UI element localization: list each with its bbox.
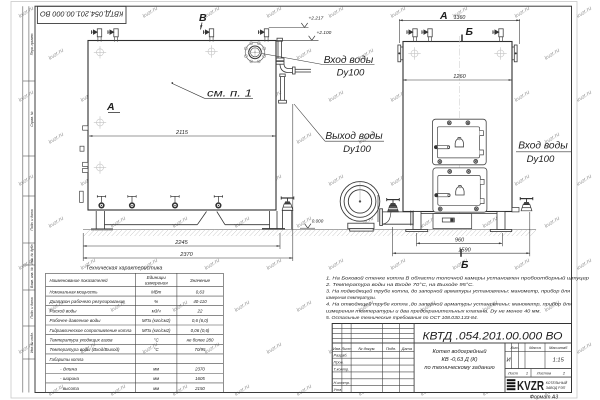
svg-text:Гидравлическое сопротивление к: Гидравлическое сопротивление котла xyxy=(50,328,133,333)
svg-text:kvzr.ru: kvzr.ru xyxy=(544,216,561,230)
svg-text:мм: мм xyxy=(153,367,159,372)
svg-text:Инв. № подл.: Инв. № подл. xyxy=(30,332,34,353)
svg-text:40-110: 40-110 xyxy=(193,299,207,304)
svg-text:Справ. №: Справ. № xyxy=(30,111,34,127)
svg-text:Дата: Дата xyxy=(401,346,413,351)
svg-text:kvzr.ru: kvzr.ru xyxy=(172,216,189,230)
svg-text:kvzr.ru: kvzr.ru xyxy=(514,174,531,188)
svg-text:Вход воды: Вход воды xyxy=(518,141,568,152)
svg-text:%: % xyxy=(154,299,158,304)
svg-text:kvzr.ru: kvzr.ru xyxy=(18,174,35,188)
svg-text:по техническому заданию: по техническому заданию xyxy=(424,365,495,371)
svg-text:1360: 1360 xyxy=(454,15,466,21)
svg-text:3. На подводящей трубе котла,: 3. На подводящей трубе котла, до запорно… xyxy=(326,288,571,294)
svg-text:Разраб.: Разраб. xyxy=(334,353,348,358)
svg-text:Котел водогрейный: Котел водогрейный xyxy=(432,348,487,355)
svg-text:Листов: Листов xyxy=(536,371,551,376)
svg-text:Взам. инв. №: Взам. инв. № xyxy=(30,267,34,288)
svg-text:kvzr.ru: kvzr.ru xyxy=(296,216,313,230)
svg-text:Номинальная мощность: Номинальная мощность xyxy=(50,289,99,294)
svg-text:Масштаб: Масштаб xyxy=(549,345,568,350)
svg-text:Подп.: Подп. xyxy=(386,346,396,351)
svg-text:МПа (кгс/см2): МПа (кгс/см2) xyxy=(142,318,171,323)
svg-text:Подп. и дата: Подп. и дата xyxy=(30,209,34,230)
svg-text:0,06 (0,6): 0,06 (0,6) xyxy=(191,328,210,333)
svg-text:КВ -0,63 Д (К): КВ -0,63 Д (К) xyxy=(442,357,478,363)
svg-text:Габариты котла: Габариты котла xyxy=(50,357,85,362)
svg-text:2150: 2150 xyxy=(194,386,205,391)
svg-text:+2.217: +2.217 xyxy=(309,16,324,22)
svg-text:kvzr.ru: kvzr.ru xyxy=(390,258,407,272)
svg-text:Н.контр.: Н.контр. xyxy=(334,380,350,385)
svg-text:Dy100: Dy100 xyxy=(527,154,555,165)
svg-text:1: 1 xyxy=(526,371,528,376)
svg-text:kvzr.ru: kvzr.ru xyxy=(142,6,159,20)
svg-text:kvzr.ru: kvzr.ru xyxy=(18,6,35,20)
svg-text:1590: 1590 xyxy=(458,247,471,253)
svg-text:1:15: 1:15 xyxy=(553,358,565,364)
svg-text:°С: °С xyxy=(154,347,160,352)
svg-text:kvzr.ru: kvzr.ru xyxy=(328,174,345,188)
svg-text:1605: 1605 xyxy=(195,376,205,381)
svg-text:2370: 2370 xyxy=(194,367,205,372)
svg-text:А: А xyxy=(439,10,448,22)
svg-text:Масса: Масса xyxy=(529,345,541,350)
svg-text:1. На Боковой стенке котла В: 1. На Боковой стенке котла В области топ… xyxy=(326,275,590,281)
svg-text:Подп. и дата: Подп. и дата xyxy=(30,297,34,318)
svg-text:2115: 2115 xyxy=(175,130,189,136)
svg-text:kvzr.ru: kvzr.ru xyxy=(576,174,593,188)
svg-text:70/95: 70/95 xyxy=(195,347,207,352)
svg-text:kvzr.ru: kvzr.ru xyxy=(296,132,313,146)
svg-text:kvzr.ru: kvzr.ru xyxy=(266,342,283,356)
svg-text:измерения: измерения xyxy=(145,281,169,286)
svg-text:В: В xyxy=(199,12,207,24)
svg-text:Значение: Значение xyxy=(190,278,211,283)
svg-text:kvzr.ru: kvzr.ru xyxy=(544,48,561,62)
svg-text:Диапазон рабочего регулировани: Диапазон рабочего регулирования xyxy=(48,299,125,304)
svg-text:м3/ч: м3/ч xyxy=(152,309,162,314)
svg-text:Изм.: Изм. xyxy=(333,346,341,351)
svg-text:kvzr.ru: kvzr.ru xyxy=(576,6,593,20)
svg-text:kvzr.ru: kvzr.ru xyxy=(172,384,189,398)
svg-text:2370: 2370 xyxy=(179,252,193,258)
svg-text:не более 280: не более 280 xyxy=(187,338,214,343)
svg-text:KVZR: KVZR xyxy=(517,379,544,393)
svg-text:1260: 1260 xyxy=(453,74,466,80)
svg-text:КВТД.054.201.00.000 ВО: КВТД.054.201.00.000 ВО xyxy=(40,10,124,19)
svg-text:960: 960 xyxy=(455,237,465,243)
svg-text:+2.100: +2.100 xyxy=(317,30,332,36)
svg-text:- высота: - высота xyxy=(60,386,80,391)
svg-text:5. Остальные технические треб: 5. Остальные технические требования по О… xyxy=(326,315,478,320)
svg-text:kvzr.ru: kvzr.ru xyxy=(482,216,499,230)
svg-text:Наименование показателей: Наименование показателей xyxy=(50,277,108,283)
svg-text:0,63: 0,63 xyxy=(196,289,205,294)
svg-text:kvzr.ru: kvzr.ru xyxy=(48,48,65,62)
svg-text:Температура уходящих газов: Температура уходящих газов xyxy=(50,338,114,343)
svg-text:°С: °С xyxy=(154,338,160,343)
svg-text:измерения температуры.: измерения температуры. xyxy=(326,295,376,300)
svg-text:kvzr.ru: kvzr.ru xyxy=(18,90,35,104)
svg-text:Вход воды: Вход воды xyxy=(324,55,374,66)
svg-text:ЗАВОД РЭП: ЗАВОД РЭП xyxy=(546,386,566,390)
svg-text:Единицы: Единицы xyxy=(147,275,167,280)
svg-text:kvzr.ru: kvzr.ru xyxy=(172,300,189,314)
svg-text:kvzr.ru: kvzr.ru xyxy=(296,300,313,314)
svg-text:kvzr.ru: kvzr.ru xyxy=(234,384,251,398)
svg-text:kvzr.ru: kvzr.ru xyxy=(328,6,345,20)
svg-text:Лист: Лист xyxy=(340,346,352,351)
svg-text:мм: мм xyxy=(153,376,159,381)
svg-text:Перв. примен.: Перв. примен. xyxy=(30,33,34,56)
svg-text:мм: мм xyxy=(153,386,159,391)
svg-text:kvzr.ru: kvzr.ru xyxy=(296,48,313,62)
svg-text:измерения температуры и два пр: измерения температуры и два предохраните… xyxy=(326,308,541,313)
svg-text:КВТД .054.201.00.000 ВО: КВТД .054.201.00.000 ВО xyxy=(423,331,564,343)
svg-text:kvzr.ru: kvzr.ru xyxy=(328,90,345,104)
svg-text:kvzr.ru: kvzr.ru xyxy=(204,342,221,356)
svg-text:kvzr.ru: kvzr.ru xyxy=(234,300,251,314)
svg-text:22: 22 xyxy=(197,309,203,314)
svg-text:4. На отводящей трубе котла ,: 4. На отводящей трубе котла ,до запорной… xyxy=(326,301,573,307)
svg-text:kvzr.ru: kvzr.ru xyxy=(110,384,127,398)
svg-text:Формат А3: Формат А3 xyxy=(530,395,558,400)
svg-text:kvzr.ru: kvzr.ru xyxy=(576,90,593,104)
svg-text:kvzr.ru: kvzr.ru xyxy=(266,6,283,20)
svg-text:Dy100: Dy100 xyxy=(343,144,371,155)
svg-text:kvzr.ru: kvzr.ru xyxy=(514,258,531,272)
svg-text:Т.контр.: Т.контр. xyxy=(334,366,350,371)
svg-text:kvzr.ru: kvzr.ru xyxy=(390,6,407,20)
svg-text:kvzr.ru: kvzr.ru xyxy=(234,216,251,230)
svg-text:kvzr.ru: kvzr.ru xyxy=(576,258,593,272)
svg-text:2245: 2245 xyxy=(174,240,188,246)
svg-text:2. Температура воды на Входе: 2. Температура воды на Входе 70°С, на Вы… xyxy=(325,282,474,287)
svg-text:Dy100: Dy100 xyxy=(337,68,365,79)
svg-text:Температура воды (Вход/Выход): Температура воды (Вход/Выход) xyxy=(50,347,121,352)
svg-text:kvzr.ru: kvzr.ru xyxy=(48,132,65,146)
svg-text:см. п. 1: см. п. 1 xyxy=(207,88,252,99)
svg-text:МПа (кгс/см2): МПа (кгс/см2) xyxy=(142,328,171,333)
svg-text:kvzr.ru: kvzr.ru xyxy=(110,216,127,230)
svg-text:kvzr.ru: kvzr.ru xyxy=(576,342,593,356)
svg-text:kvzr.ru: kvzr.ru xyxy=(328,258,345,272)
svg-text:kvzr.ru: kvzr.ru xyxy=(204,258,221,272)
svg-text:- длина: - длина xyxy=(60,367,78,372)
svg-text:№ докум.: № докум. xyxy=(358,346,375,351)
svg-text:kvzr.ru: kvzr.ru xyxy=(296,384,313,398)
svg-text:Выход воды: Выход воды xyxy=(325,131,383,142)
svg-text:Лит.: Лит. xyxy=(509,345,519,350)
svg-text:kvzr.ru: kvzr.ru xyxy=(48,216,65,230)
svg-text:МВт: МВт xyxy=(151,289,162,294)
svg-text:kvzr.ru: kvzr.ru xyxy=(514,90,531,104)
svg-text:Б: Б xyxy=(461,259,469,271)
svg-text:Пров.: Пров. xyxy=(334,360,344,365)
svg-text:А: А xyxy=(106,101,115,113)
svg-text:Лист: Лист xyxy=(507,371,519,376)
svg-text:Техническая характеристика: Техническая характеристика xyxy=(86,266,162,272)
svg-text:kvzr.ru: kvzr.ru xyxy=(514,6,531,20)
svg-text:Б: Б xyxy=(466,26,474,38)
svg-text:0,6 (6,0): 0,6 (6,0) xyxy=(192,318,209,323)
svg-text:Рабочее давление воды: Рабочее давление воды xyxy=(50,318,102,323)
svg-text:kvzr.ru: kvzr.ru xyxy=(266,258,283,272)
svg-text:Утв.: Утв. xyxy=(334,387,343,392)
svg-text:0.000: 0.000 xyxy=(312,219,324,224)
svg-text:- ширина: - ширина xyxy=(60,376,80,381)
svg-text:Инв. № дубл.: Инв. № дубл. xyxy=(30,244,34,265)
svg-text:Расход воды: Расход воды xyxy=(50,309,78,314)
svg-text:КОТЕЛЬНЫЙ: КОТЕЛЬНЫЙ xyxy=(546,381,568,385)
